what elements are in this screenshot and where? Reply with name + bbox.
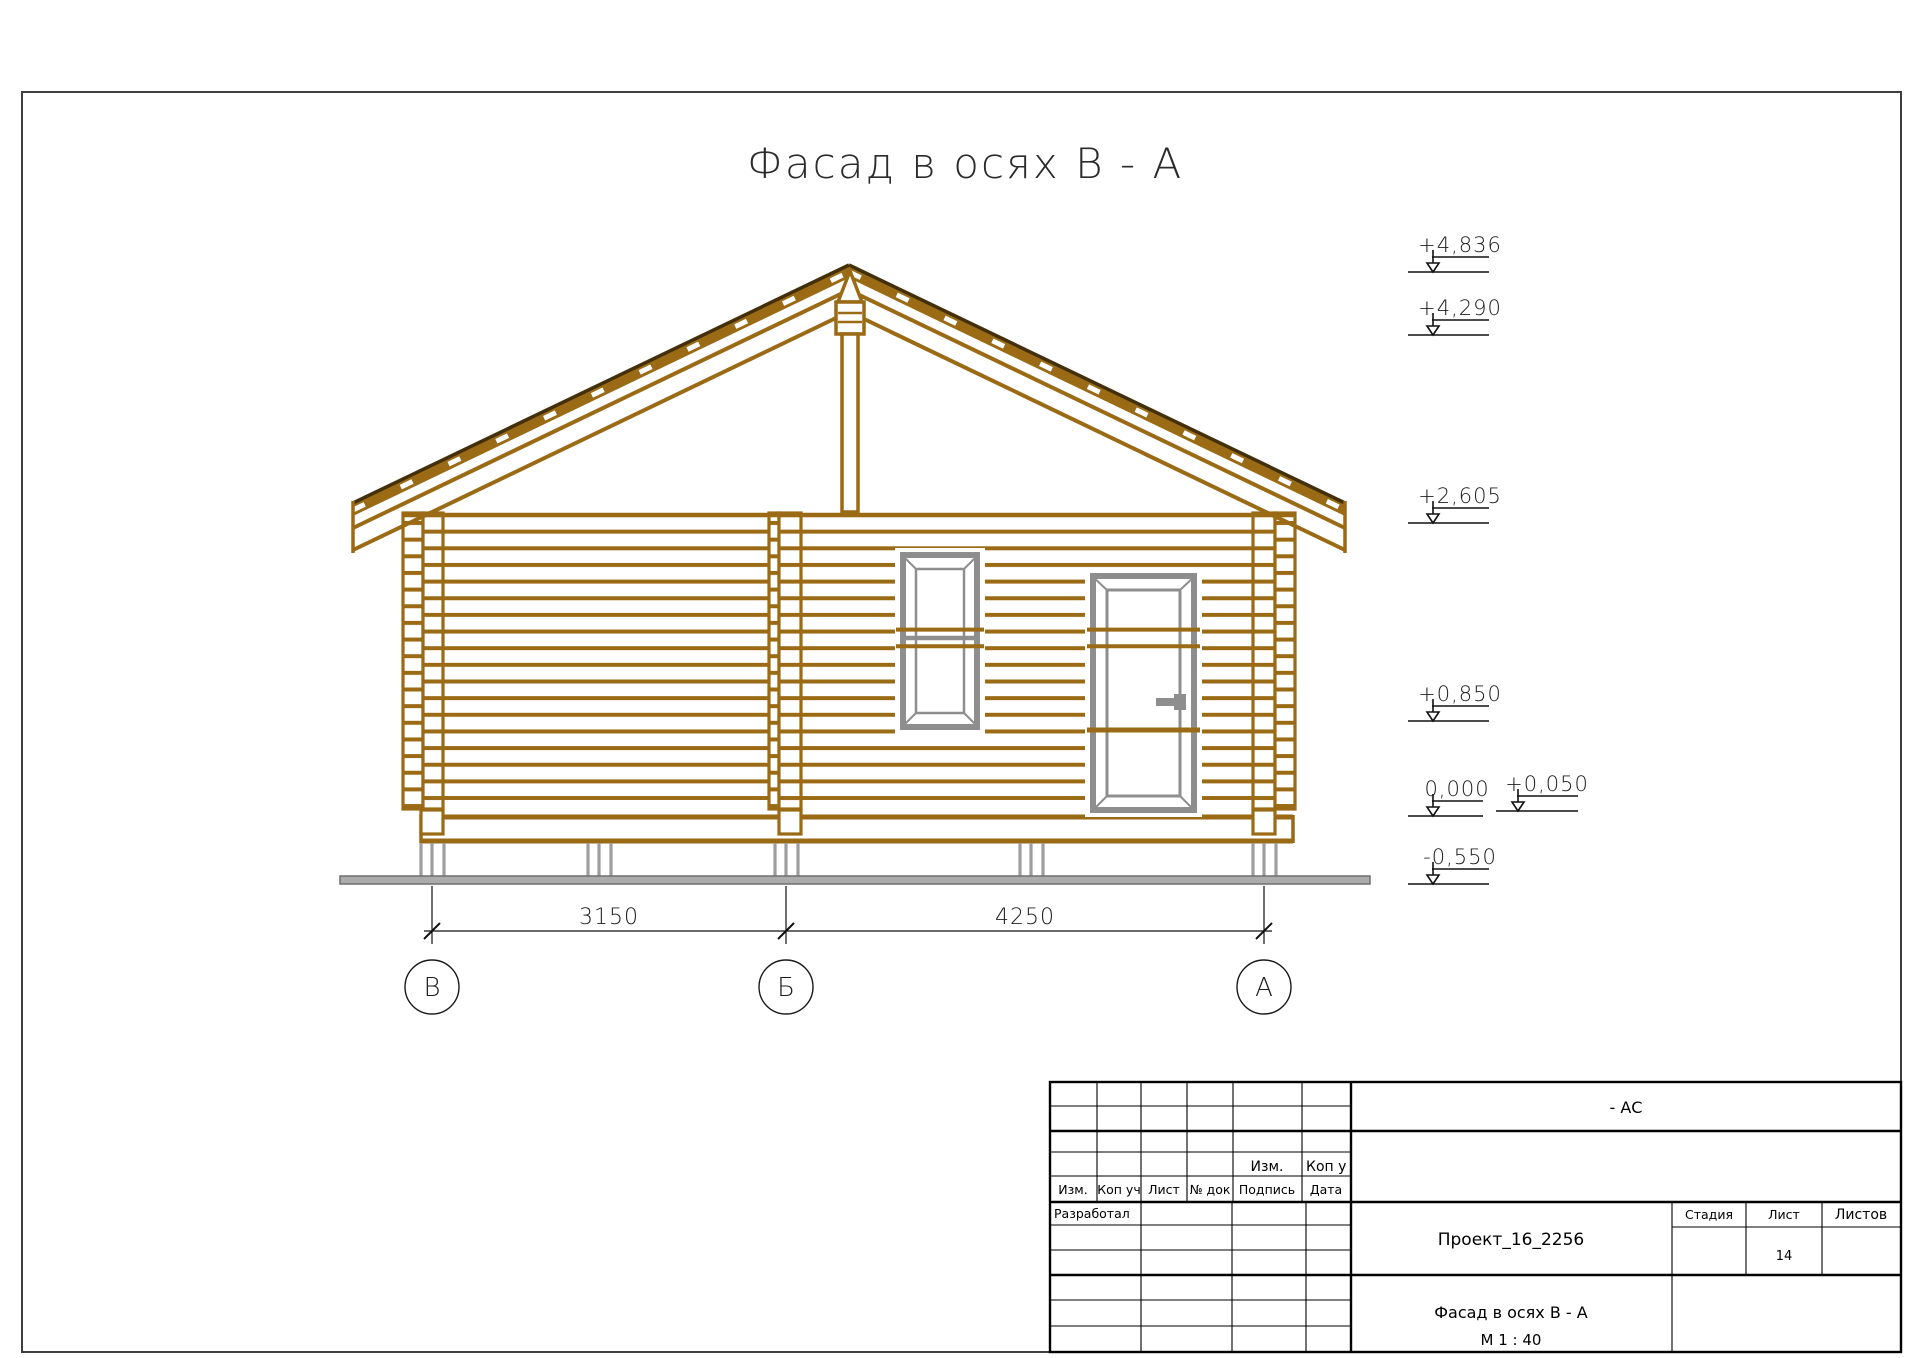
page-title: Фасад в осях В - А (747, 139, 1183, 188)
axis-label: Б (777, 973, 795, 1003)
dimension-value: 3150 (579, 905, 639, 930)
log-ends-axis-v (403, 513, 443, 809)
tb-col-podpis: Подпись (1239, 1182, 1295, 1197)
tb-col-data: Дата (1310, 1182, 1342, 1197)
title-block: Изм. Коп у Изм. Коп уч Лист № док Подпис… (1050, 1082, 1901, 1352)
ridge-post (836, 271, 864, 512)
ground-line (340, 876, 1370, 884)
tb-col-list: Лист (1148, 1182, 1180, 1197)
roofing-edge-right (849, 265, 1345, 503)
door-handle-base (1174, 694, 1186, 710)
fascia-left (353, 290, 849, 528)
elevation-value: +0,850 (1418, 682, 1502, 706)
elevation-value: -0,550 (1423, 845, 1497, 869)
gable-roof (353, 265, 1345, 553)
elevation-mark: 0,000 (1408, 777, 1490, 816)
elevation-value: +4,290 (1418, 296, 1502, 320)
tb-upper-kop: Коп у (1306, 1159, 1346, 1175)
tb-sheet-number: 14 (1776, 1249, 1793, 1264)
elevation-value: 0,000 (1424, 777, 1489, 801)
tb-upper-izm: Изм. (1251, 1159, 1284, 1175)
fascia-right (849, 290, 1345, 528)
foundation-piles (421, 843, 1276, 876)
elevation-mark: +0,050 (1496, 772, 1589, 811)
tb-col-kop-uch: Коп уч (1097, 1182, 1140, 1197)
tb-sheet-label: Лист (1768, 1207, 1800, 1222)
elevation-value: +0,050 (1505, 772, 1589, 796)
tb-col-no-dok: № док (1190, 1182, 1231, 1197)
tb-developed-label: Разработал (1054, 1206, 1130, 1221)
log-ends-axis-b (769, 513, 801, 809)
tb-drawing-title: Фасад в осях В - А (1434, 1303, 1588, 1322)
log-ends-axis-a (1253, 513, 1295, 809)
elevation-value: +2,605 (1418, 484, 1502, 508)
axis-label: А (1255, 973, 1273, 1003)
elevation-marks: +4,836 +4,290 +2,605 +0,850 0,000 +0,050 (1408, 233, 1589, 884)
roofing-edge-left (353, 265, 849, 503)
tb-scale: М 1 : 40 (1481, 1331, 1542, 1349)
door (1085, 569, 1202, 817)
elevation-value: +4,836 (1418, 233, 1502, 257)
tb-stage-label: Стадия (1685, 1207, 1733, 1222)
drawing-sheet: Фасад в осях В - А (0, 0, 1920, 1358)
dimension-chain: 3150 4250 (424, 886, 1272, 944)
axis-bubbles: В Б А (405, 960, 1291, 1014)
elevation-mark: +4,836 (1408, 233, 1502, 272)
tb-sheets-label: Листов (1835, 1207, 1887, 1223)
window (895, 548, 985, 734)
elevation-mark: +4,290 (1408, 296, 1502, 335)
facade-drawing-canvas: Фасад в осях В - А (0, 0, 1920, 1358)
dimension-value: 4250 (995, 905, 1055, 930)
axis-label: В (423, 973, 440, 1003)
tb-col-izm: Изм. (1058, 1182, 1087, 1197)
tb-doc-code: - АС (1610, 1098, 1643, 1117)
tb-project-name: Проект_16_2256 (1438, 1230, 1585, 1250)
elevation-mark: -0,550 (1408, 845, 1497, 884)
elevation-mark: +2,605 (1408, 484, 1502, 523)
elevation-mark: +0,850 (1408, 682, 1502, 721)
